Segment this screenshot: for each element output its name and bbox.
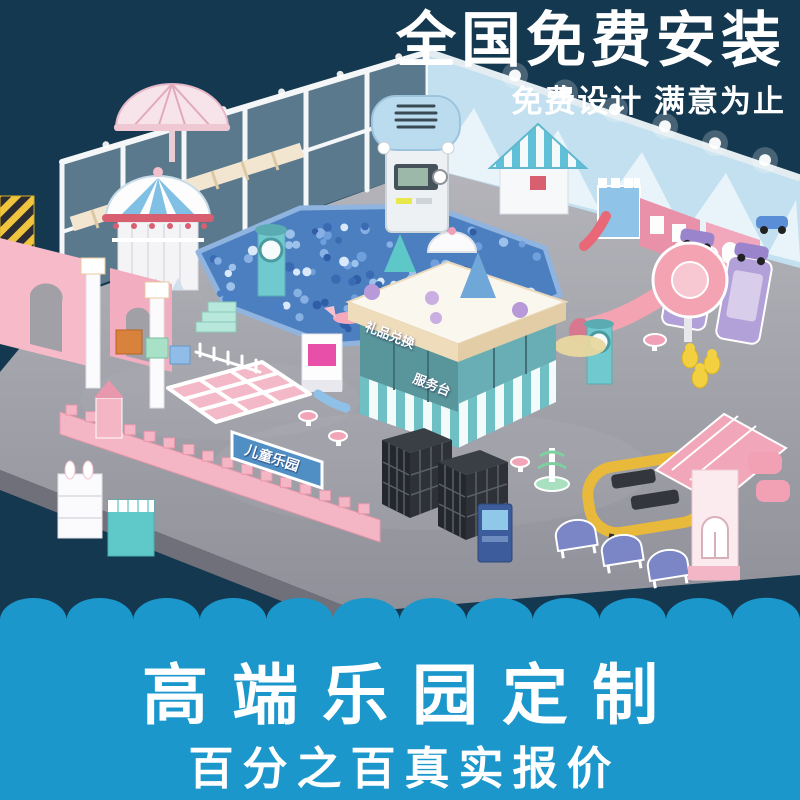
headline-title: 全国免费安装: [396, 8, 786, 74]
promo-banner: 礼品兑换 服务台: [0, 0, 800, 800]
pink-sofa: [748, 452, 782, 474]
watch-tower-left: [255, 224, 287, 296]
ornate-pillar: [86, 268, 100, 388]
hay-patch: [554, 335, 606, 357]
claw-machine: [302, 334, 342, 392]
headline: 全国免费安装 免费设计 满意为止: [396, 8, 786, 121]
headline-subtitle: 免费设计 满意为止: [396, 76, 786, 121]
kids-arcade-cabinet: [478, 504, 512, 562]
teal-piano-table: [108, 500, 154, 556]
band-subtitle: 百分之百真实报价: [0, 732, 800, 797]
pink-sofa: [756, 480, 790, 502]
castle-tower: [96, 398, 122, 438]
band-title: 高端乐园定制: [0, 642, 800, 738]
